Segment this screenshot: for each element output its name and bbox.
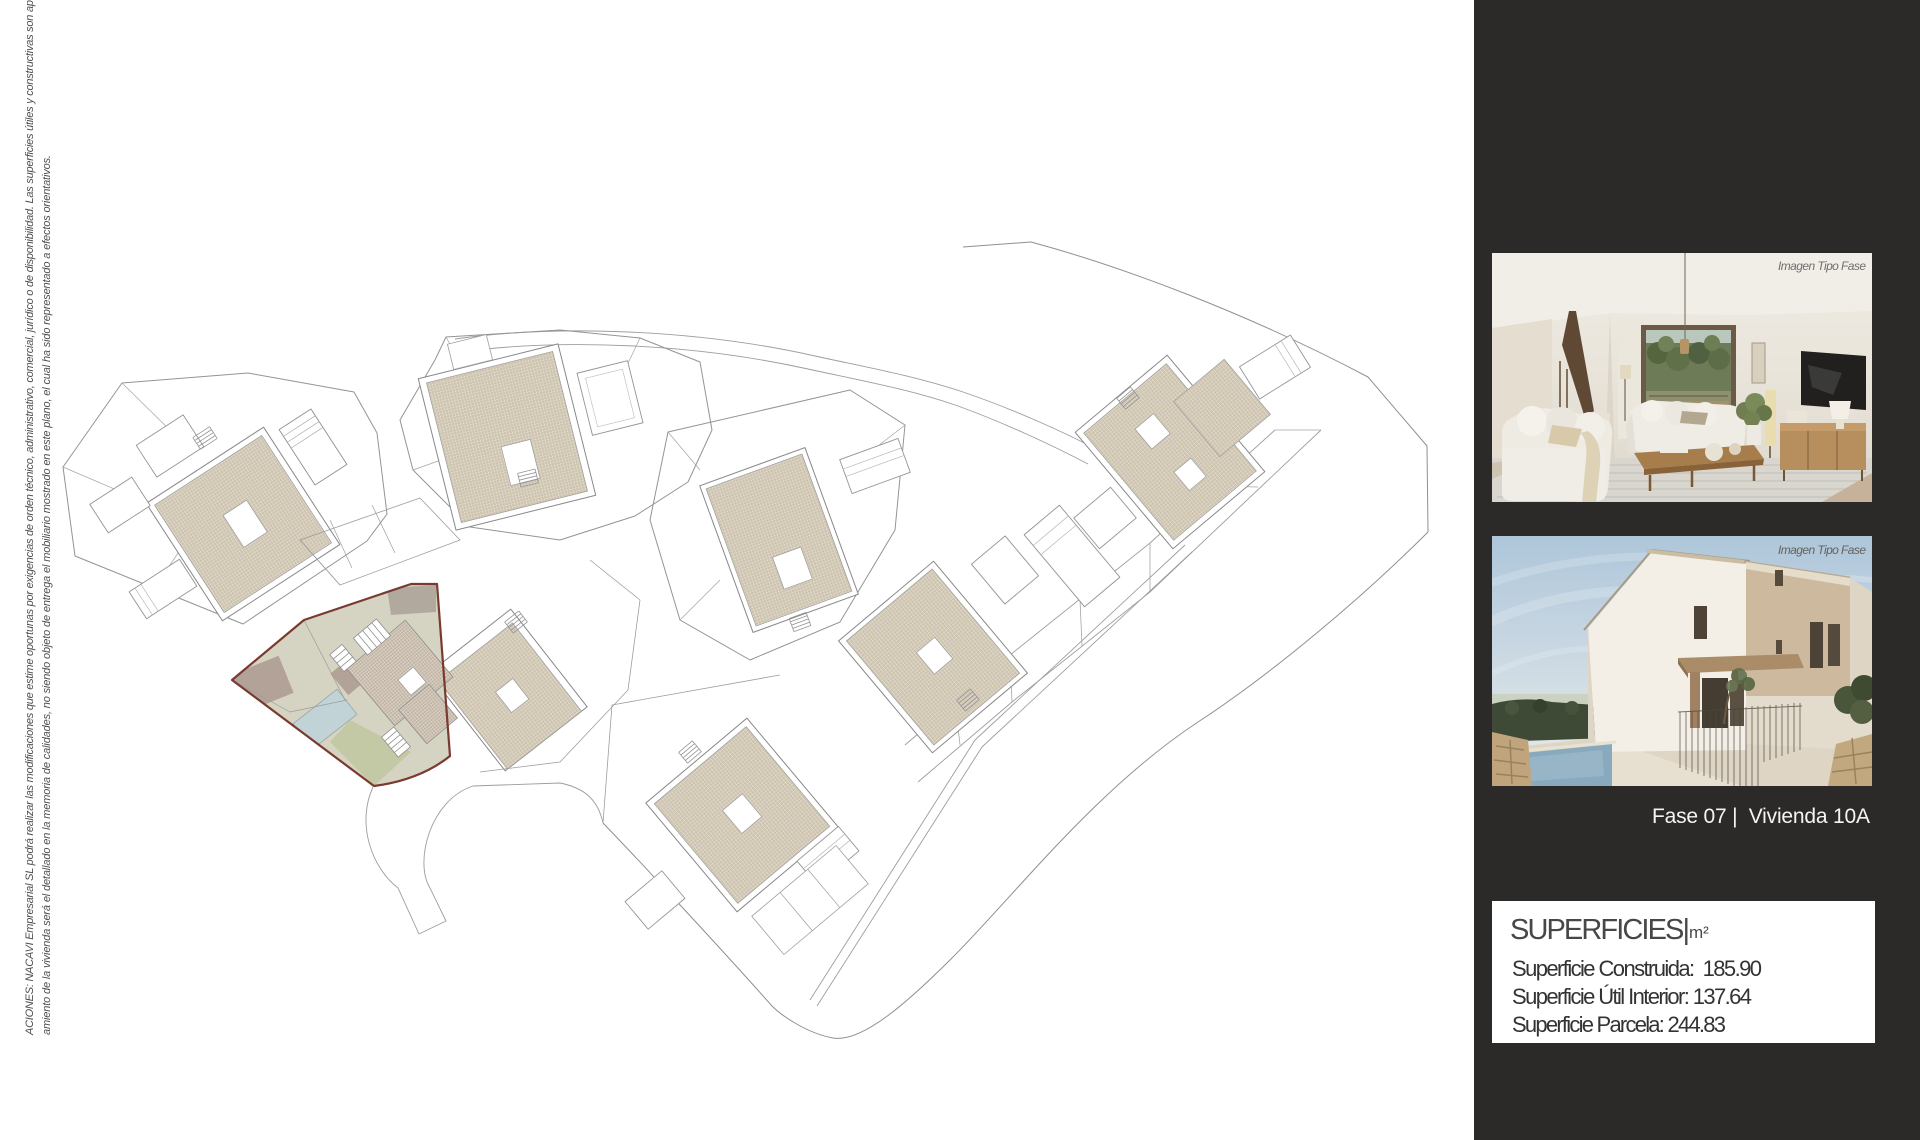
svg-text:SUPERFICIES|: SUPERFICIES| (1510, 914, 1690, 946)
svg-text:Superficie Parcela: 244.83: Superficie Parcela: 244.83 (1512, 1012, 1726, 1037)
svg-text:ACIONES: NACAVI Empresarial SL: ACIONES: NACAVI Empresarial SL podrá rea… (24, 0, 36, 1036)
svg-text:Imagen Tipo Fase: Imagen Tipo Fase (1778, 543, 1866, 557)
svg-text:amiento de la vivienda será el: amiento de la vivienda será el detallado… (41, 155, 53, 1035)
svg-text:Imagen Tipo Fase: Imagen Tipo Fase (1778, 259, 1866, 273)
svg-text:Fase 07 | Vivienda 10A: Fase 07 | Vivienda 10A (1652, 805, 1870, 828)
svg-text:m²: m² (1689, 923, 1709, 942)
svg-text:Superficie Construida: 185.90: Superficie Construida: 185.90 (1512, 956, 1762, 981)
svg-text:Superficie Útil Interior: 137.: Superficie Útil Interior: 137.64 (1512, 984, 1752, 1009)
